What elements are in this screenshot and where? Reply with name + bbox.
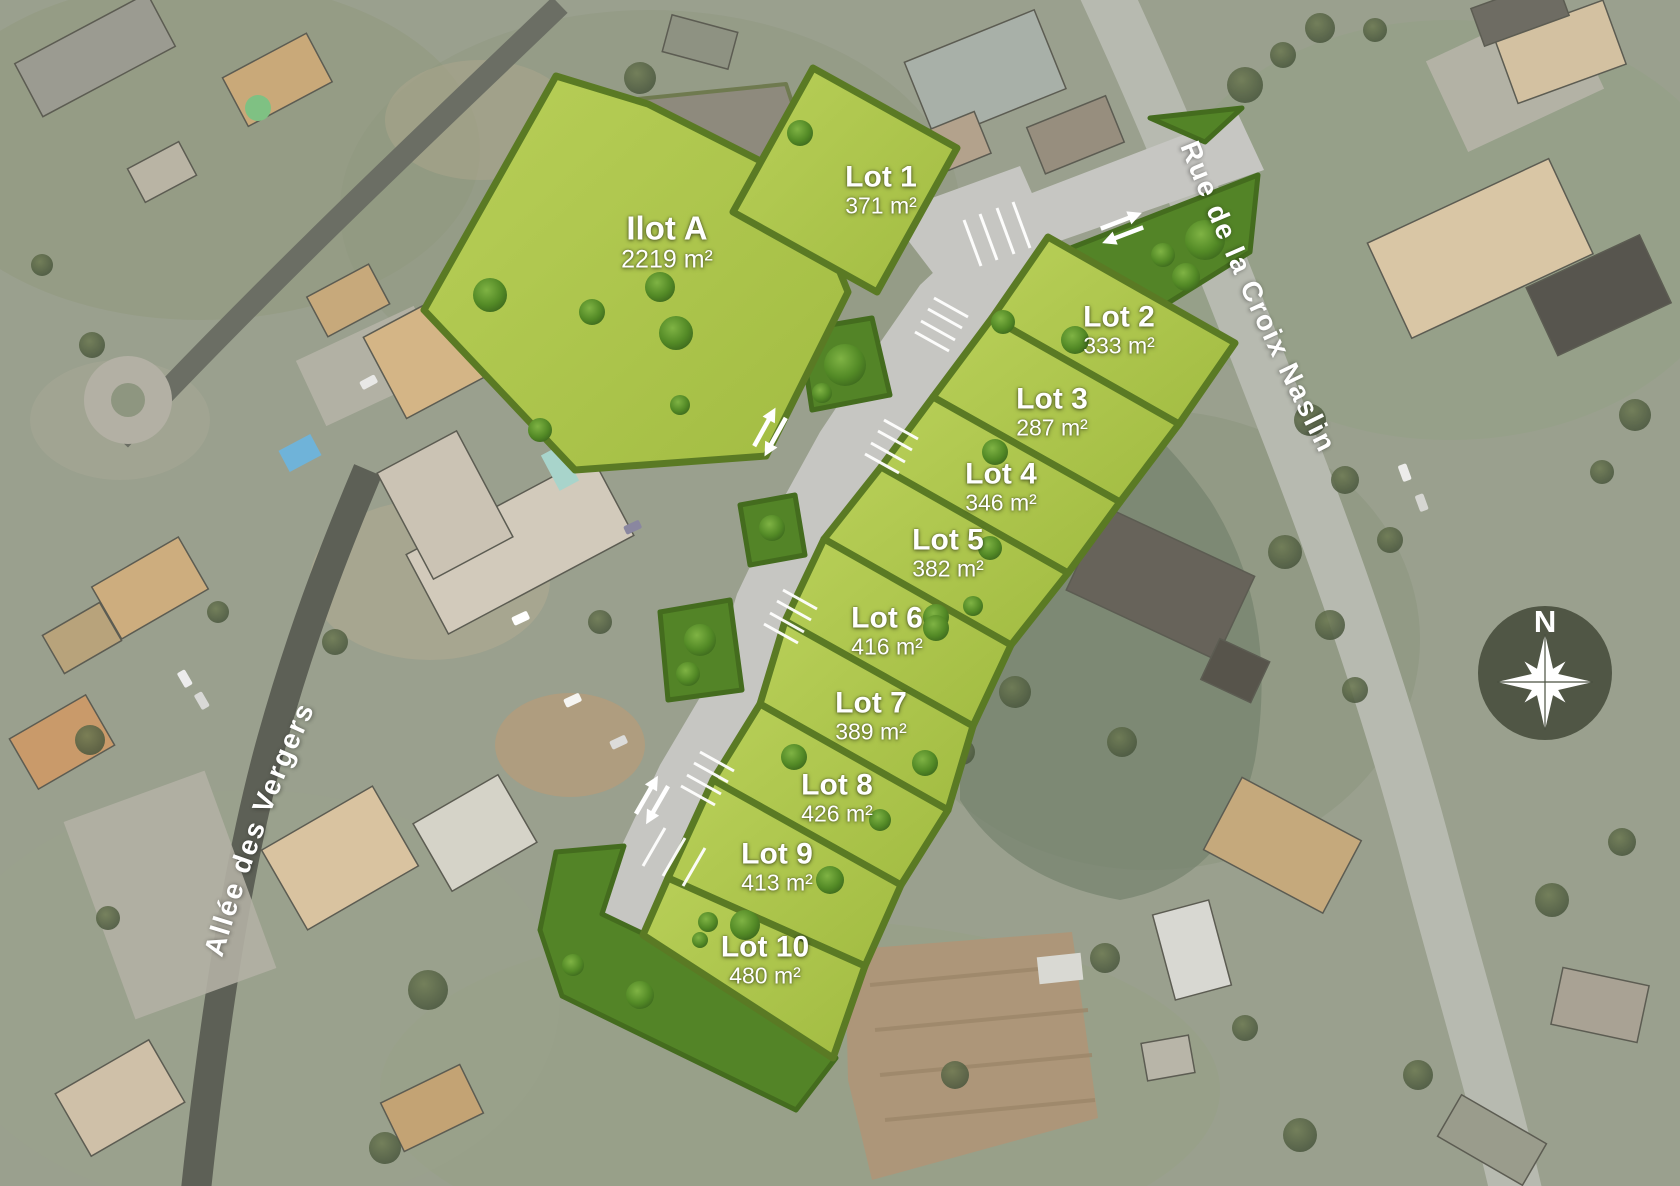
site-plan-map: Rue de la Croix Naslin Allée des Vergers… xyxy=(0,0,1680,1186)
round-pool xyxy=(245,95,271,121)
aerial-plan-canvas: Rue de la Croix Naslin Allée des Vergers… xyxy=(0,0,1680,1186)
compass-north-label: N xyxy=(1534,604,1556,639)
